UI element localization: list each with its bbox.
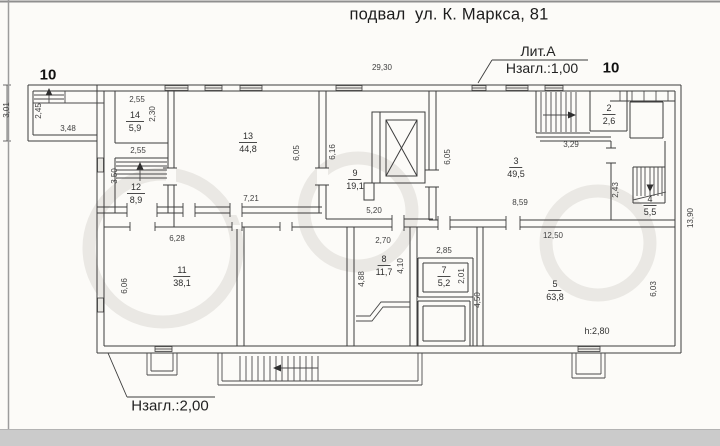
room-label-7: 7 5,2	[437, 265, 450, 290]
room-number: 5	[548, 279, 561, 291]
dim-room11-height: 6,06	[121, 278, 129, 294]
room-area: 19,1	[346, 180, 364, 192]
floor-plan-page: подвал ул. К. Маркса, 81 Лит.А Нзагл.:1,…	[0, 0, 720, 446]
dim-stair3-width: 3,29	[563, 141, 579, 149]
dim-shaft-height: 4,50	[474, 292, 482, 308]
building-letter-label: Лит.А	[520, 43, 555, 59]
dim-room4-lobby: 2,43	[612, 182, 620, 198]
room-number: 2	[602, 103, 615, 115]
dim-wing-inner: 2,45	[35, 103, 43, 119]
dim-building-width: 29,30	[372, 64, 392, 72]
room-label-11: 11 38,1	[173, 265, 191, 290]
dim-building-height: 13,90	[687, 208, 695, 228]
room-number: 9	[348, 168, 361, 180]
room-number: 12	[127, 182, 145, 194]
stairs	[33, 91, 666, 385]
outside-stairs-platform	[218, 353, 422, 385]
dim-room3-height: 6,05	[444, 149, 452, 165]
room3-stairs	[541, 92, 576, 132]
elevation-mark-top: Нзагл.:1,00	[506, 60, 578, 76]
room-number: 13	[239, 131, 257, 143]
window-wells	[147, 353, 605, 378]
elevation-mark-bottom: Нзагл.:2,00	[131, 398, 208, 415]
room-label-5: 5 63,8	[546, 279, 564, 304]
dim-room8-right: 4,10	[397, 258, 405, 274]
room-label-13: 13 44,8	[239, 131, 257, 156]
page-title: подвал ул. К. Маркса, 81	[349, 6, 548, 25]
axis-marker-left: 10	[40, 67, 57, 84]
room-area: 5,5	[644, 206, 657, 218]
room-number: 11	[173, 265, 190, 277]
room-label-12: 12 8,9	[127, 182, 145, 207]
room-label-14: 14 5,9	[126, 110, 144, 135]
room-number: 8	[377, 254, 390, 266]
dim-room12-height: 3,50	[111, 168, 119, 184]
dim-wing-outer: 3,01	[3, 102, 11, 118]
dim-room8-height: 4,88	[358, 271, 366, 287]
dim-room3-width: 8,59	[512, 199, 528, 207]
room-label-3: 3 49,5	[507, 156, 525, 181]
room-area: 8,9	[130, 194, 143, 206]
room-area: 44,8	[239, 143, 257, 155]
dim-room9-width: 5,20	[366, 207, 382, 215]
dim-room13-height: 6,05	[293, 145, 301, 161]
ceiling-height-note: h:2,80	[584, 326, 609, 336]
dim-room5-height: 6,03	[650, 281, 658, 297]
room-label-4: 4 5,5	[643, 194, 656, 219]
room-area: 49,5	[507, 168, 525, 180]
dim-room13-width: 7,21	[243, 195, 259, 203]
room-label-2: 2 2,6	[602, 103, 615, 128]
room-area: 38,1	[173, 277, 191, 289]
room-label-9: 9 19,1	[346, 168, 364, 193]
room-number: 3	[509, 156, 522, 168]
axis-marker-right: 10	[603, 60, 620, 77]
room-area: 11,7	[376, 266, 393, 278]
dim-room5-width: 12,50	[543, 232, 563, 240]
room-area: 63,8	[546, 291, 564, 303]
dim-room8-width: 2,70	[375, 237, 391, 245]
dim-room14-width: 2,55	[129, 96, 145, 104]
dim-room7-height: 2,01	[458, 268, 466, 284]
dim-room14-depth: 2,30	[149, 106, 157, 122]
room-number: 14	[126, 110, 144, 122]
wing-stairs	[33, 91, 104, 103]
room-area: 2,6	[603, 115, 616, 127]
dim-corridor-width: 2,55	[130, 147, 146, 155]
room-number: 7	[437, 265, 450, 277]
room-area: 5,2	[438, 277, 451, 289]
dim-room7-width: 2,85	[436, 247, 452, 255]
room-number: 4	[643, 194, 656, 206]
dim-wing-width: 3,48	[60, 125, 76, 133]
dim-room11-width: 6,28	[169, 235, 185, 243]
room8-ramp	[356, 302, 410, 321]
room-area: 5,9	[129, 122, 142, 134]
room-label-8: 8 11,7	[376, 254, 393, 279]
dim-room9-height: 6,16	[329, 144, 337, 160]
